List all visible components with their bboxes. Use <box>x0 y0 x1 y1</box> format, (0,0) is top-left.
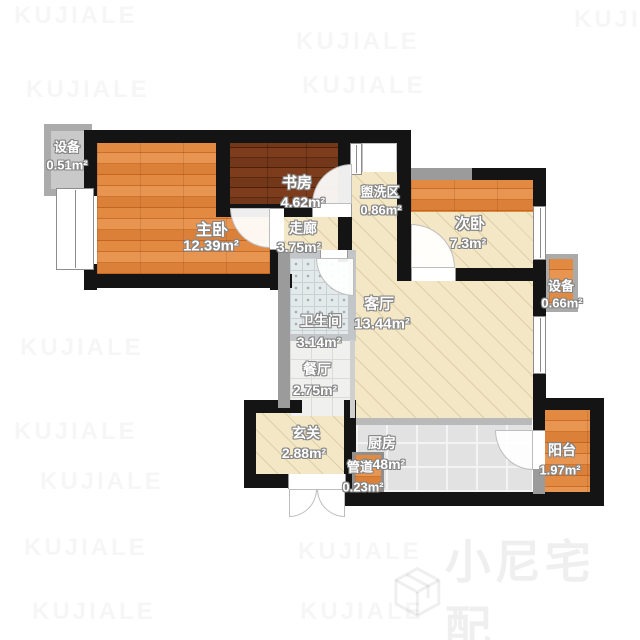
label-bathroom-area: 3.14m² <box>297 334 341 350</box>
label-second-name: 次卧 <box>455 213 485 234</box>
kujiale-watermark: KUJIALE <box>24 534 148 562</box>
kujiale-watermark: KUJIALE <box>14 418 138 446</box>
label-living-area: 13.44m² <box>354 316 410 333</box>
kitchen-edge-line <box>356 418 532 425</box>
wall <box>472 168 546 180</box>
label-kitchen-name: 厨房 <box>368 433 396 453</box>
label-balcony-name: 阳台 <box>548 440 576 460</box>
wall-secondary <box>411 168 472 180</box>
floor-plan: KUJIALE KUJIALE KUJIALE KUJIALE KUJIALE … <box>0 0 640 640</box>
window-second-bedroom[interactable] <box>533 206 546 260</box>
doorway-second-bedroom <box>411 268 456 281</box>
kujiale-watermark: KUJIALE <box>302 72 426 100</box>
label-corridor-name: 走廊 <box>289 218 317 238</box>
wall <box>533 410 545 432</box>
cube-logo-icon <box>390 564 445 620</box>
label-equip-left-area: 0.51m² <box>46 158 87 173</box>
window-master[interactable] <box>56 188 94 270</box>
label-dining-name: 餐厅 <box>303 359 331 379</box>
label-master-name: 主卧 <box>196 216 228 240</box>
wall <box>533 180 546 208</box>
doorway-bathroom <box>320 250 348 258</box>
label-washing-name: 盥洗区 <box>360 182 399 201</box>
brand-name: 小尼宅配 <box>445 526 640 640</box>
kujiale-watermark: KUJIALE <box>296 28 420 56</box>
label-equip-right-name: 设备 <box>548 276 574 295</box>
label-corridor-area: 3.75m² <box>277 239 321 255</box>
room-entrance[interactable] <box>256 412 346 474</box>
label-entrance-area: 2.88m² <box>282 445 326 461</box>
wall <box>84 130 411 143</box>
label-study-area: 4.62m² <box>281 194 325 210</box>
xiaoni-logo: 小尼宅配 <box>390 526 640 640</box>
dining-divider <box>350 340 355 418</box>
label-living-name: 客厅 <box>364 293 394 314</box>
kujiale-watermark: KUJIALE <box>20 334 144 362</box>
doorway-entry <box>288 474 346 489</box>
label-washing-area: 0.86m² <box>360 203 401 218</box>
wall <box>84 274 292 288</box>
kujiale-watermark: KUJIALE <box>14 2 138 30</box>
exterior-recess <box>362 143 397 173</box>
label-dining-area: 2.75m² <box>293 382 337 398</box>
label-pipe-area: 0.23m² <box>342 480 383 495</box>
kujiale-watermark: KUJIALE <box>40 468 164 496</box>
kujiale-watermark: KUJIALE <box>32 598 156 626</box>
label-study-name: 书房 <box>282 172 312 193</box>
wall <box>590 398 604 506</box>
wall <box>244 474 290 488</box>
entry-door-left-leaf[interactable] <box>289 489 317 517</box>
label-bathroom-name: 卫生间 <box>300 311 342 331</box>
label-entrance-name: 玄关 <box>292 423 320 443</box>
label-master-area: 12.39m² <box>183 238 239 255</box>
label-second-area: 7.3m² <box>450 235 487 251</box>
label-balcony-area: 1.97m² <box>539 463 580 478</box>
kujiale-watermark: KUJIALE <box>26 76 150 104</box>
label-pipe-name: 管道 <box>347 457 373 476</box>
entry-door-right-leaf[interactable] <box>317 489 345 517</box>
wall-secondary <box>278 252 290 408</box>
window-living[interactable] <box>533 316 546 374</box>
label-equip-left-name: 设备 <box>54 137 80 156</box>
kujiale-watermark: KUJIALE <box>574 6 640 34</box>
label-equip-right-area: 0.66m² <box>541 296 582 311</box>
